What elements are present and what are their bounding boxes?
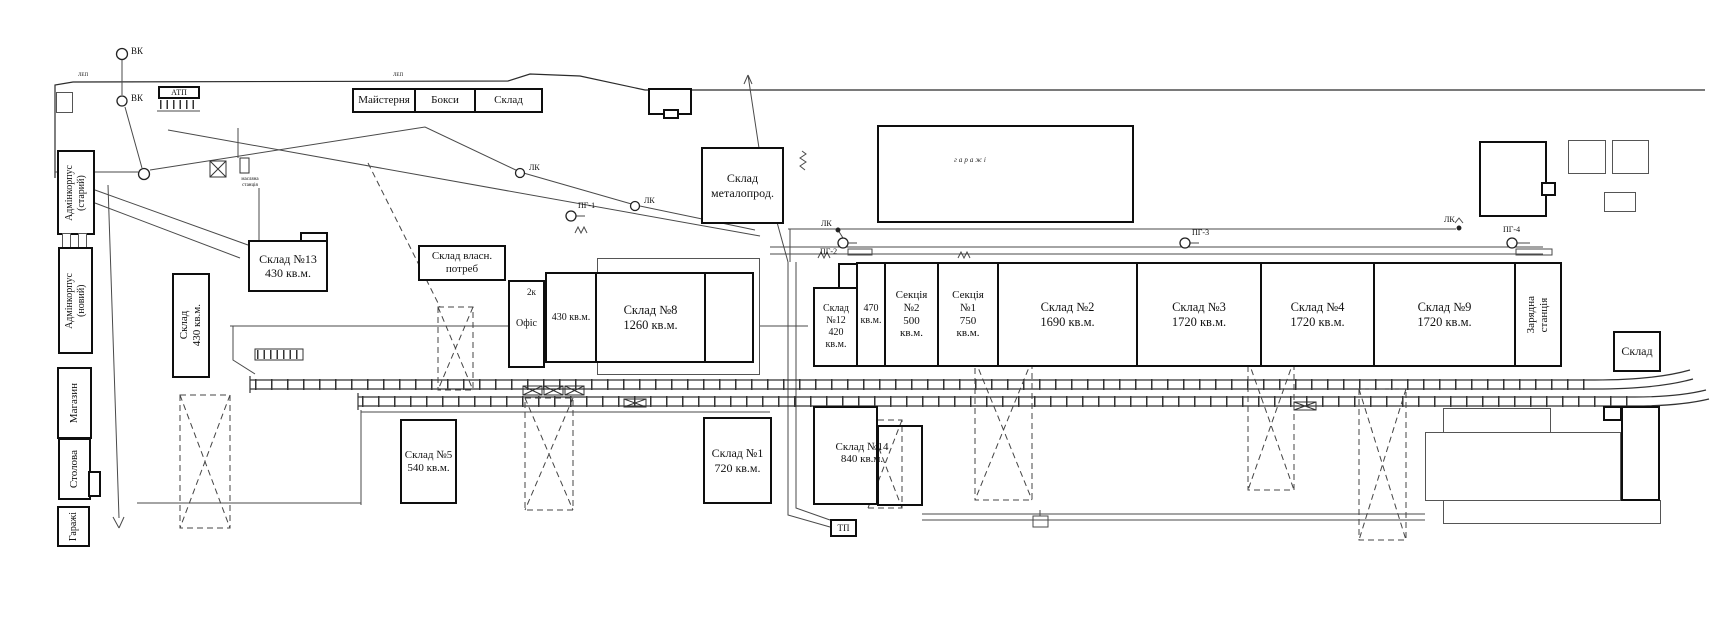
building-sklad-own-needs: Склад власн. потреб — [418, 245, 506, 281]
building-sklad4-label: Склад №4 1720 кв.м. — [1290, 300, 1344, 330]
pg2-hydrant-label: ПГ-2 — [820, 248, 837, 257]
building-sklad8-right-cell — [704, 272, 754, 363]
building-shop-label: Магазин — [68, 383, 81, 423]
building-tp: ТП — [830, 519, 857, 537]
building-admin-old-label: Адмінкорпус (старий) — [64, 165, 88, 221]
building-section2-label: Секція №2 500 кв.м. — [896, 289, 928, 341]
lk-marker-label-4: ЛК — [1444, 216, 1455, 225]
lk-marker-label-3: ЛК — [821, 220, 832, 229]
vk-marker-label-1: ВК — [131, 47, 143, 57]
lk-marker-label-1: ЛК — [529, 164, 540, 173]
building-canteen: Столова — [58, 438, 91, 500]
building-sklad4: Склад №4 1720 кв.м. — [1260, 262, 1375, 367]
site-plan: Адмінкорпус (старий) Адмінкорпус (новий)… — [0, 0, 1717, 632]
vk-marker-label-2: ВК — [131, 94, 143, 104]
building-sklad9-label: Склад №9 1720 кв.м. — [1417, 300, 1471, 330]
building-sklad5: Склад №5 540 кв.м. — [400, 419, 457, 504]
building-br-main — [1425, 432, 1621, 501]
building-unnamed-topright-annex — [1541, 182, 1556, 196]
building-sklad-own-needs-label: Склад власн. потреб — [432, 250, 492, 276]
building-garages-big — [877, 125, 1134, 223]
building-unnamed-topright — [1479, 141, 1547, 217]
building-canteen-annex — [88, 471, 101, 497]
building-section2: Секція №2 500 кв.м. — [884, 262, 939, 367]
pg1-hydrant-label: ПГ-1 — [578, 202, 595, 211]
building-sklad14-annex — [877, 425, 923, 506]
building-section1-label: Секція №1 750 кв.м. — [952, 289, 984, 341]
building-unnamed-sq2 — [1612, 140, 1649, 174]
lep-line-label-2: ЛЕП — [393, 73, 403, 79]
building-sklad13-label: Склад №13 430 кв.м. — [259, 252, 317, 280]
building-br-tall — [1621, 406, 1660, 501]
building-sklad-metal-label: Склад металопрод. — [711, 171, 774, 199]
building-area470: 470 кв.м. — [856, 262, 886, 367]
building-sklad13: Склад №13 430 кв.м. — [248, 240, 328, 292]
building-charging-station: Зарядна станція — [1514, 262, 1562, 367]
building-sklad430-vertical: Склад 430 кв.м. — [172, 273, 210, 378]
building-atp: АТП — [158, 86, 200, 99]
building-unnamed-top-notch — [663, 109, 679, 119]
building-sklad2-label: Склад №2 1690 кв.м. — [1040, 300, 1094, 330]
building-sklad-metal: Склад металопрод. — [701, 147, 784, 224]
pg3-hydrant-label: ПГ-3 — [1192, 229, 1209, 238]
building-admin-old: Адмінкорпус (старий) — [57, 150, 95, 235]
building-office-floors-label: 2к — [527, 288, 536, 298]
building-sklad2: Склад №2 1690 кв.м. — [997, 262, 1138, 367]
building-sklad-far-right-label: Склад — [1621, 344, 1652, 358]
building-sklad8-label: Склад №8 1260 кв.м. — [623, 303, 677, 333]
lk-marker-label-2: ЛК — [644, 197, 655, 206]
building-sklad8: Склад №8 1260 кв.м. — [595, 272, 706, 363]
building-area430-cell: 430 кв.м. — [545, 272, 597, 363]
building-sklad1-label: Склад №1 720 кв.м. — [712, 446, 764, 474]
building-sklad5-label: Склад №5 540 кв.м. — [405, 449, 452, 475]
building-workshop: Майстерня — [352, 88, 416, 113]
pg4-hydrant-label: ПГ-4 — [1503, 226, 1520, 235]
building-sklad-far-right: Склад — [1613, 331, 1661, 372]
building-office-label: Офіс — [516, 318, 537, 330]
oil-station-label: масляна станція — [232, 177, 268, 188]
building-br-notch — [1603, 406, 1622, 421]
building-gatehouse — [56, 92, 73, 113]
building-sklad12-label: Склад №12 420 кв.м. — [823, 303, 849, 350]
building-canteen-label: Столова — [68, 450, 81, 488]
building-sklad-top-label: Склад — [494, 94, 523, 107]
building-sklad430-vertical-label: Склад 430 кв.м. — [178, 304, 204, 346]
building-garages-small: Гаражі — [57, 506, 90, 547]
building-sklad3-label: Склад №3 1720 кв.м. — [1172, 300, 1226, 330]
building-area430-label: 430 кв.м. — [552, 312, 590, 324]
building-sklad1: Склад №1 720 кв.м. — [703, 417, 772, 504]
building-workshop-label: Майстерня — [358, 94, 410, 107]
building-admin-new-label: Адмінкорпус (новий) — [64, 273, 88, 329]
building-br-lower — [1443, 500, 1661, 524]
building-br-upper — [1443, 408, 1551, 433]
building-unnamed-sq3 — [1604, 192, 1636, 212]
building-boxes-label: Бокси — [431, 94, 459, 107]
building-section1: Секція №1 750 кв.м. — [937, 262, 999, 367]
building-area470-label: 470 кв.м. — [861, 303, 882, 327]
building-sklad12: Склад №12 420 кв.м. — [813, 287, 859, 367]
lep-line-label-1: ЛЕП — [78, 73, 88, 79]
building-boxes: Бокси — [414, 88, 476, 113]
building-admin-new: Адмінкорпус (новий) — [58, 247, 93, 354]
building-garages-big-label: гаражі — [936, 157, 1006, 165]
building-atp-label: АТП — [171, 88, 187, 97]
building-sklad9: Склад №9 1720 кв.м. — [1373, 262, 1516, 367]
building-sklad12-step — [838, 263, 858, 289]
building-garages-small-label: Гаражі — [68, 512, 80, 541]
building-sklad-top: Склад — [474, 88, 543, 113]
building-shop: Магазин — [57, 367, 92, 439]
hydrant-well-markers — [117, 49, 1518, 249]
building-unnamed-sq1 — [1568, 140, 1606, 174]
building-sklad14-label: Склад №14 840 кв.м. — [812, 441, 912, 465]
building-charging-station-label: Зарядна станція — [1525, 296, 1551, 333]
building-tp-label: ТП — [838, 523, 850, 534]
building-sklad3: Склад №3 1720 кв.м. — [1136, 262, 1262, 367]
